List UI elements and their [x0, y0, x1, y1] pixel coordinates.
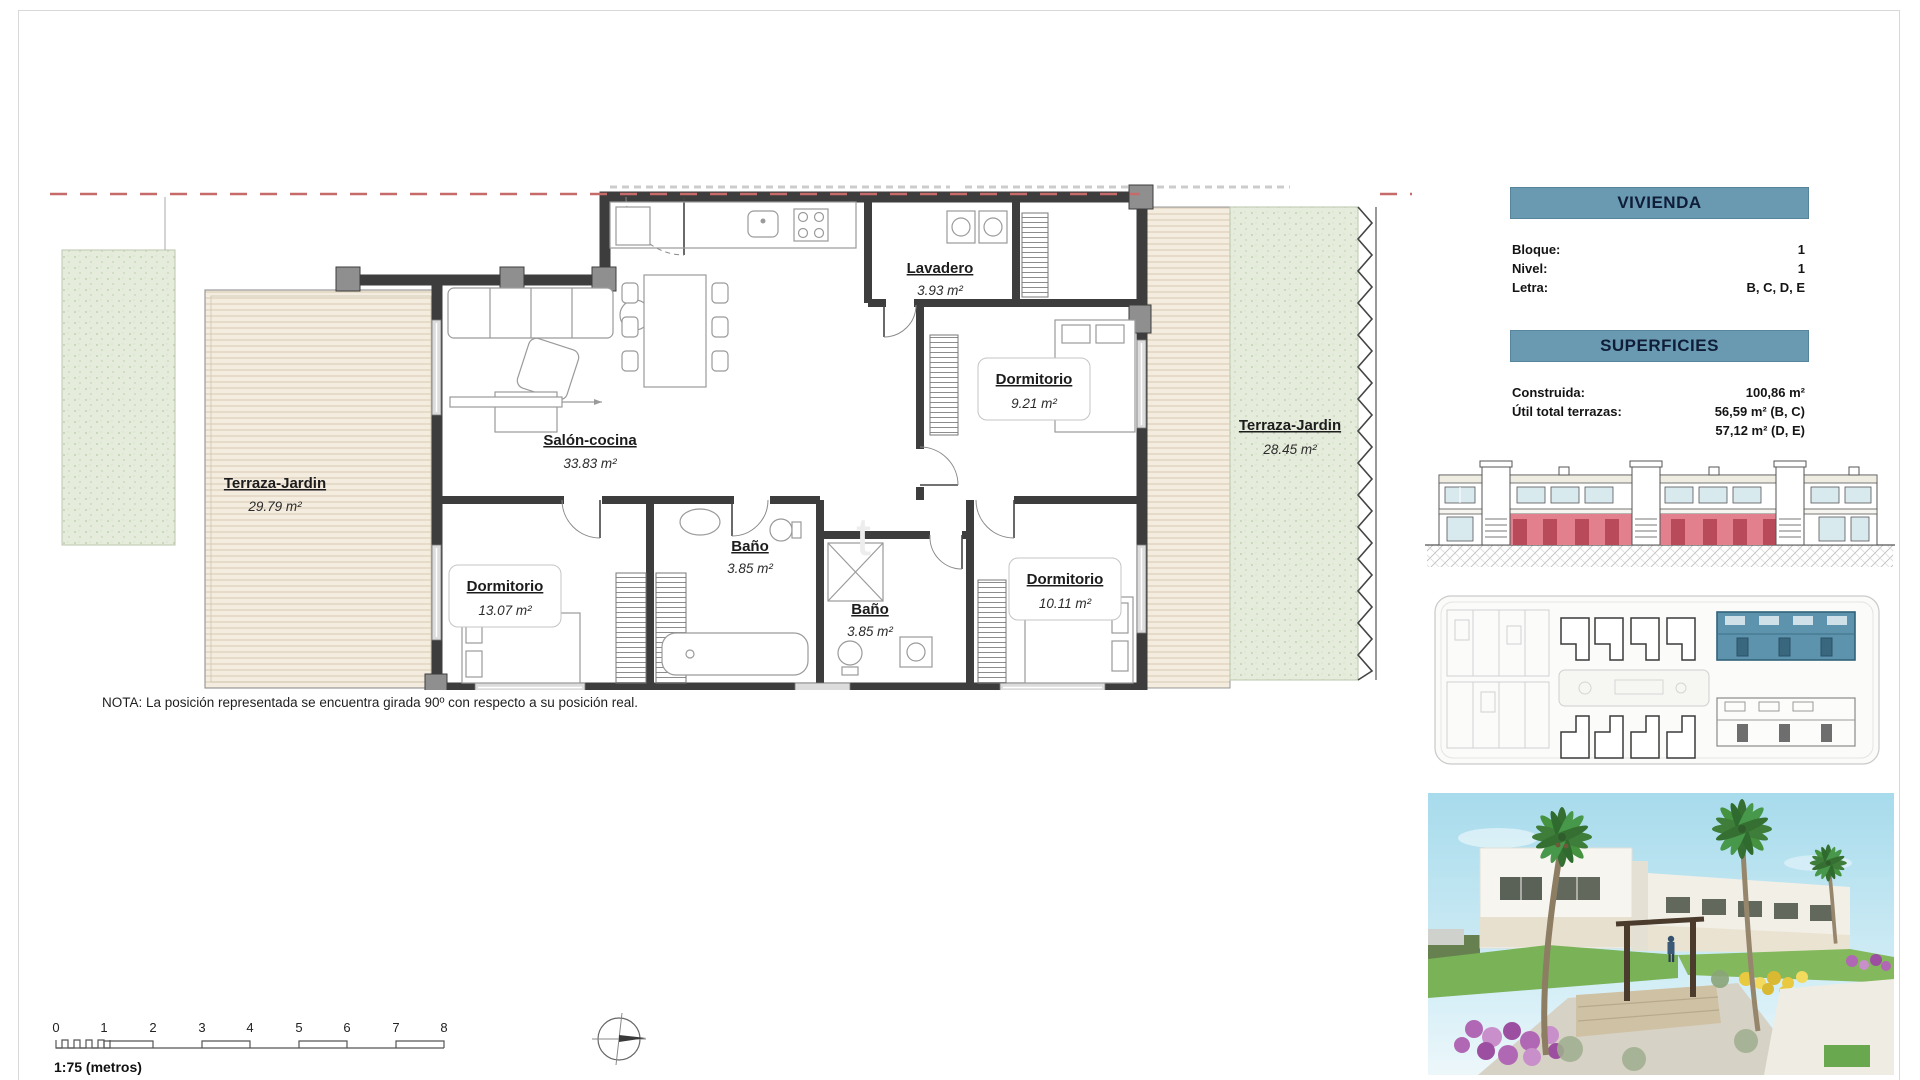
- row-value: B, C, D, E: [1746, 278, 1805, 297]
- scale-ticks: 0 1 2 3 4 5 6 7 8: [52, 1020, 447, 1035]
- table-row: Construida:100,86 m²: [1512, 383, 1805, 402]
- svg-text:Salón-cocina: Salón-cocina: [543, 432, 637, 449]
- row-label: Nivel:: [1512, 259, 1547, 278]
- svg-text:Lavadero: Lavadero: [907, 260, 974, 277]
- row-label: Útil total terrazas:: [1512, 402, 1622, 421]
- row-value: 1: [1798, 240, 1805, 259]
- superficies-table: Construida:100,86 m² Útil total terrazas…: [1512, 383, 1805, 440]
- page-border-left: [18, 10, 19, 1080]
- row-value: 100,86 m²: [1746, 383, 1805, 402]
- svg-text:2: 2: [149, 1020, 156, 1035]
- svg-text:Baño: Baño: [731, 538, 769, 555]
- svg-text:28.45 m²: 28.45 m²: [1262, 442, 1317, 457]
- page-border-right: [1899, 10, 1900, 1080]
- svg-text:4: 4: [246, 1020, 253, 1035]
- row-value: 1: [1798, 259, 1805, 278]
- svg-text:5: 5: [295, 1020, 302, 1035]
- svg-text:Dormitorio: Dormitorio: [1027, 571, 1104, 588]
- row-value: 56,59 m² (B, C): [1715, 402, 1805, 421]
- adjacent-block: [1717, 698, 1855, 746]
- row-label: Letra:: [1512, 278, 1548, 297]
- svg-text:3.85 m²: 3.85 m²: [727, 561, 773, 576]
- svg-text:3.85 m²: 3.85 m²: [847, 624, 893, 639]
- svg-text:Baño: Baño: [851, 601, 889, 618]
- svg-text:3.93 m²: 3.93 m²: [917, 283, 963, 298]
- row-label: Bloque:: [1512, 240, 1560, 259]
- svg-text:10.11 m²: 10.11 m²: [1039, 596, 1092, 611]
- rotation-note: NOTA: La posición representada se encuen…: [102, 695, 638, 710]
- floor-plan: t Terraza-Jardin 29.79 m² Salón-cocina 3…: [50, 155, 1420, 690]
- vivienda-table: Bloque:1 Nivel:1 Letra:B, C, D, E: [1512, 240, 1805, 297]
- svg-text:0: 0: [52, 1020, 59, 1035]
- svg-text:Terraza-Jardin: Terraza-Jardin: [1239, 417, 1341, 434]
- site-plan: [1425, 582, 1895, 778]
- vivienda-header: VIVIENDA: [1510, 187, 1809, 219]
- page-border-top: [18, 10, 1900, 11]
- svg-text:3: 3: [198, 1020, 205, 1035]
- svg-text:1: 1: [100, 1020, 107, 1035]
- svg-text:33.83 m²: 33.83 m²: [563, 456, 617, 471]
- grass-patch-left: [62, 197, 175, 545]
- table-row: Letra:B, C, D, E: [1512, 278, 1805, 297]
- table-row: Bloque:1: [1512, 240, 1805, 259]
- superficies-header: SUPERFICIES: [1510, 330, 1809, 362]
- svg-text:9.21 m²: 9.21 m²: [1011, 396, 1057, 411]
- svg-text:6: 6: [343, 1020, 350, 1035]
- row-value: 57,12 m² (D, E): [1715, 421, 1805, 440]
- svg-text:Terraza-Jardin: Terraza-Jardin: [224, 475, 326, 492]
- exterior-render: [1428, 793, 1894, 1075]
- row-label: Construida:: [1512, 383, 1585, 402]
- table-row: 57,12 m² (D, E): [1512, 421, 1805, 440]
- svg-text:Dormitorio: Dormitorio: [996, 371, 1073, 388]
- table-row: Útil total terrazas:56,59 m² (B, C): [1512, 402, 1805, 421]
- highlighted-block: [1717, 612, 1855, 660]
- svg-text:8: 8: [440, 1020, 447, 1035]
- svg-text:7: 7: [392, 1020, 399, 1035]
- svg-text:13.07 m²: 13.07 m²: [478, 603, 532, 618]
- terrace-right: [1147, 207, 1376, 688]
- svg-text:1:75 (metros): 1:75 (metros): [54, 1059, 142, 1075]
- watermark: t: [856, 507, 871, 567]
- scale-bar: 0 1 2 3 4 5 6 7 8 1:75 (metros): [50, 1018, 470, 1080]
- table-row: Nivel:1: [1512, 259, 1805, 278]
- svg-text:Dormitorio: Dormitorio: [467, 578, 544, 595]
- svg-text:29.79 m²: 29.79 m²: [247, 499, 302, 514]
- building-elevation: [1425, 453, 1895, 571]
- north-arrow-compass: [588, 1008, 650, 1070]
